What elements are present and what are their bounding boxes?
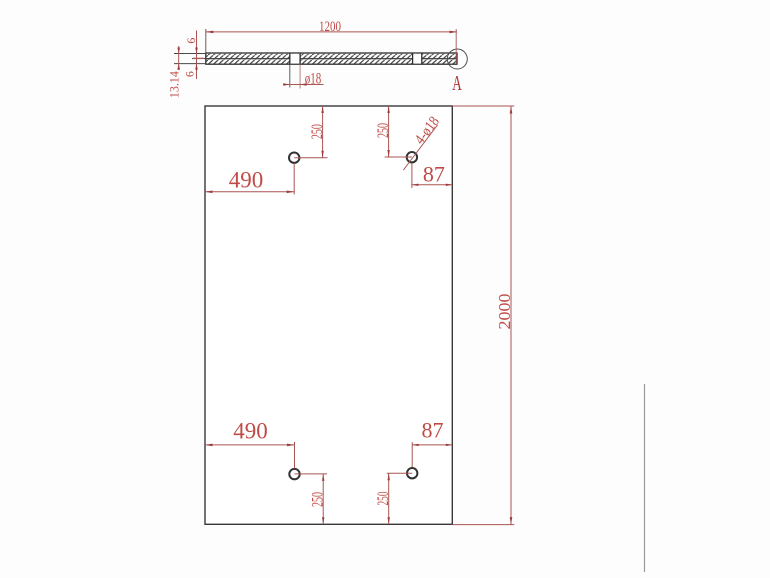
svg-text:1200: 1200 <box>319 19 341 35</box>
svg-text:13.14: 13.14 <box>167 71 182 98</box>
svg-text:490: 490 <box>229 168 264 193</box>
svg-text:A: A <box>452 71 462 95</box>
svg-text:250: 250 <box>309 124 326 139</box>
svg-text:250: 250 <box>310 492 327 507</box>
svg-text:6: 6 <box>184 38 198 44</box>
svg-text:490: 490 <box>233 419 268 444</box>
svg-text:87: 87 <box>423 162 445 187</box>
svg-text:250: 250 <box>375 123 392 138</box>
svg-text:2000: 2000 <box>495 294 514 330</box>
svg-text:ø18: ø18 <box>305 71 322 88</box>
svg-text:6: 6 <box>183 71 197 77</box>
svg-text:87: 87 <box>422 418 444 443</box>
svg-text:250: 250 <box>375 492 392 506</box>
